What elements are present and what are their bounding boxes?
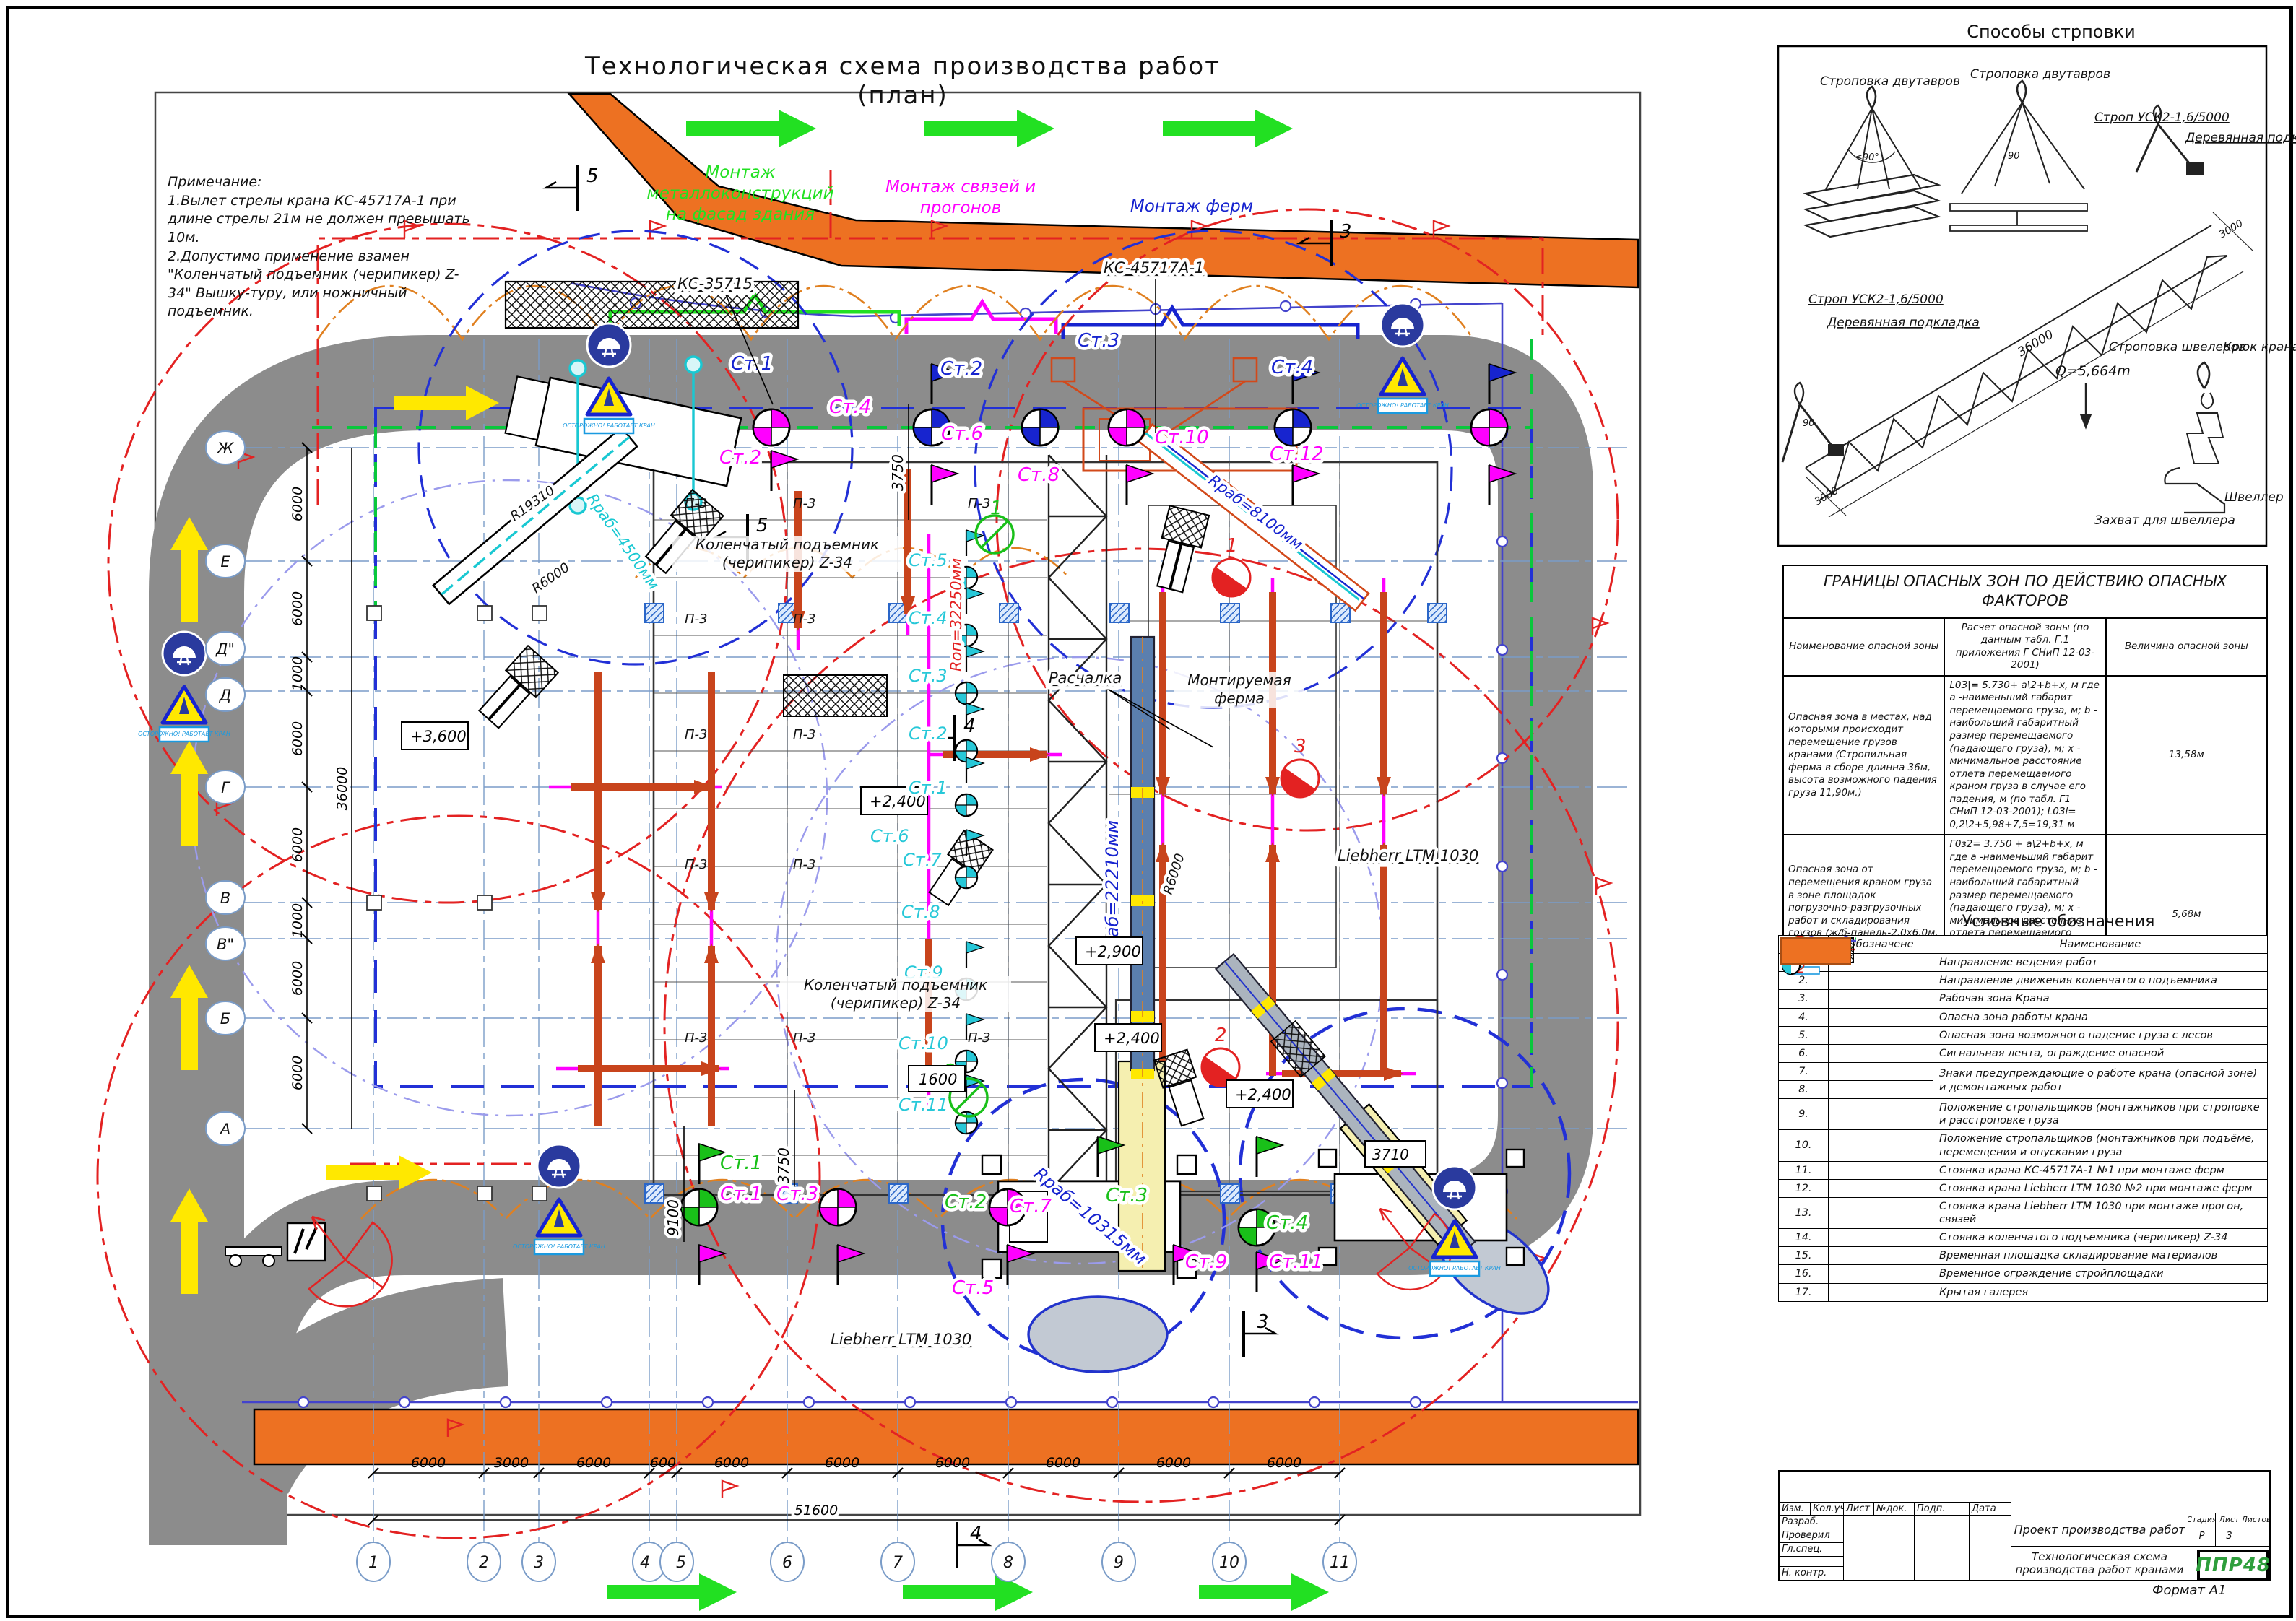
svg-text:КС-35715: КС-35715 bbox=[677, 275, 753, 292]
svg-text:П-3: П-3 bbox=[685, 1030, 707, 1046]
svg-text:ОСТОРОЖНО! РАБОТАЕТ КРАН: ОСТОРОЖНО! РАБОТАЕТ КРАН bbox=[513, 1243, 605, 1250]
cherry-picker-label-2: Коленчатый подъемник (черипикер) Z-34 bbox=[780, 976, 1011, 1012]
svg-text:Rраб=4500мм: Rраб=4500мм bbox=[584, 490, 662, 593]
legend-row: 16. Временное ограждение стройплощадки bbox=[1779, 1265, 2268, 1283]
panel-labels: П-3 П-3 П-3 П-3 П-3 П-3 П-3 П-3 П-3 П-3 … bbox=[685, 496, 990, 1046]
montage-green-label: Монтаж металлоконструкций на фасад здани… bbox=[636, 162, 845, 225]
legend-row: 12. Стоянка крана Liebherr LTM 1030 №2 п… bbox=[1779, 1179, 2268, 1197]
temp-fence-icon bbox=[1829, 1265, 1933, 1283]
svg-text:Ст.2: Ст.2 bbox=[945, 1191, 987, 1213]
legend-row: 15. Временная площадка складирование мат… bbox=[1779, 1247, 2268, 1265]
svg-text:В": В" bbox=[217, 936, 234, 953]
svg-text:Ст.11: Ст.11 bbox=[1269, 1251, 1323, 1273]
svg-text:Ст.10: Ст.10 bbox=[898, 1033, 948, 1053]
legend-row: 14. Стоянка коленчатого подъемника (чери… bbox=[1779, 1229, 2268, 1247]
svg-text:3: 3 bbox=[1340, 221, 1352, 243]
tb-list: Лист bbox=[1843, 1502, 1873, 1515]
svg-text:1: 1 bbox=[1226, 535, 1238, 557]
svg-text:Ст.8: Ст.8 bbox=[901, 902, 940, 922]
svg-text:Расчалка: Расчалка bbox=[1049, 669, 1122, 687]
svg-text:3: 3 bbox=[1294, 736, 1307, 757]
tb-proveril: Проверил bbox=[1780, 1529, 1843, 1542]
drawing-sheet: ОСТОРОЖНО! РАБОТАЕТ КРАН ОСТОРОЖНО! РАБО… bbox=[0, 0, 2296, 1621]
tb-podp: Подп. bbox=[1914, 1502, 1969, 1515]
svg-text:10: 10 bbox=[1219, 1554, 1239, 1572]
danger-zone-icon bbox=[1829, 1008, 1933, 1026]
svg-text:1600: 1600 bbox=[919, 1071, 957, 1088]
svg-text:6: 6 bbox=[782, 1554, 792, 1572]
svg-text:ОСТОРОЖНО! РАБОТАЕТ КРАН: ОСТОРОЖНО! РАБОТАЕТ КРАН bbox=[563, 422, 655, 429]
tb-razrab: Разраб. bbox=[1780, 1515, 1843, 1529]
svg-text:9: 9 bbox=[1114, 1554, 1124, 1572]
svg-text:1000: 1000 bbox=[290, 656, 306, 691]
svg-text:Liebherr LTM 1030: Liebherr LTM 1030 bbox=[831, 1331, 971, 1348]
elevation-labels: +3,600 +2,400 +2,900 +2,400 1600 +2,400 bbox=[402, 722, 1293, 1108]
cherry-picker-label-1: Коленчатый подъемник (черипикер) Z-34 bbox=[672, 536, 903, 572]
svg-text:8: 8 bbox=[1003, 1554, 1013, 1572]
svg-text:Б: Б bbox=[220, 1010, 230, 1027]
svg-text:Ст.6: Ст.6 bbox=[870, 826, 909, 846]
tb-listov: Листов bbox=[2243, 1513, 2269, 1526]
svg-text:П-3: П-3 bbox=[793, 496, 815, 511]
svg-text:П-3: П-3 bbox=[685, 727, 707, 742]
mounted-truss-label: Монтируемая ферма bbox=[1174, 672, 1304, 708]
tb-stadia: Стадия bbox=[2188, 1513, 2215, 1526]
svg-text:Ст.6: Ст.6 bbox=[941, 423, 983, 445]
svg-text:П-3: П-3 bbox=[793, 612, 815, 627]
tb-data: Дата bbox=[1969, 1502, 2011, 1515]
hazard-col1: Наименование опасной зоны bbox=[1783, 618, 1944, 676]
hazard-title: ГРАНИЦЫ ОПАСНЫХ ЗОН ПО ДЕЙСТВИЮ ОПАСНЫХ … bbox=[1783, 565, 2267, 618]
notes-block: Примечание: 1.Вылет стрелы крана КС-4571… bbox=[168, 173, 478, 321]
tb-list-h: Лист bbox=[2215, 1513, 2243, 1526]
sheet-format: Формат А1 bbox=[2152, 1583, 2227, 1598]
svg-text:П-3: П-3 bbox=[793, 727, 815, 742]
title-block: Изм. Кол.уч Лист №док. Подп. Дата Разраб… bbox=[1778, 1470, 2271, 1581]
svg-text:Rраб=8100мм: Rраб=8100мм bbox=[1205, 471, 1307, 553]
hazard-col2: Расчет опасной зоны (по данным табл. Г.1… bbox=[1944, 618, 2105, 676]
svg-text:51600: 51600 bbox=[794, 1503, 838, 1518]
legend-row: 11. Стоянка крана КС-45717А-1 №1 при мон… bbox=[1779, 1161, 2268, 1179]
svg-text:А: А bbox=[219, 1121, 230, 1138]
svg-text:3000: 3000 bbox=[494, 1455, 529, 1471]
ppr48-logo: ППР48 bbox=[2197, 1550, 2269, 1581]
svg-text:Д: Д bbox=[219, 687, 231, 704]
notes-head: Примечание: bbox=[168, 173, 478, 192]
gallery-icon bbox=[1829, 1283, 1933, 1301]
svg-text:Е: Е bbox=[220, 553, 230, 570]
svg-text:Ж: Ж bbox=[216, 440, 235, 457]
svg-text:Ст.11: Ст.11 bbox=[898, 1095, 948, 1115]
svg-text:П-3: П-3 bbox=[685, 612, 707, 627]
svg-text:П-3: П-3 bbox=[793, 857, 815, 872]
station-labels: Ст.1 Ст.2 Ст.3 Ст.4 Ст.2 Ст.4 Ст.6 Ст.8 … bbox=[719, 330, 1324, 1299]
svg-text:3750: 3750 bbox=[775, 1147, 792, 1184]
svg-text:5: 5 bbox=[756, 515, 768, 536]
svg-text:11: 11 bbox=[1330, 1554, 1350, 1572]
legend-row: 6. Сигнальная лента, ограждение опасной bbox=[1779, 1044, 2268, 1062]
tb-project: Проект производства работ bbox=[2011, 1513, 2188, 1546]
svg-text:П-3: П-3 bbox=[685, 496, 707, 511]
svg-text:6000: 6000 bbox=[576, 1455, 611, 1471]
boomlift-direction-icon bbox=[1829, 972, 1933, 990]
slinger-strop-icon: 2 bbox=[1829, 1099, 1933, 1130]
dimension-left-labels: 6000 6000 1000 6000 6000 1000 6000 6000 … bbox=[290, 487, 350, 1090]
svg-text:П-3: П-3 bbox=[793, 1030, 815, 1046]
svg-text:6000: 6000 bbox=[411, 1455, 446, 1471]
svg-text:Д": Д" bbox=[215, 640, 235, 658]
storage-area-icon bbox=[1829, 1247, 1933, 1265]
svg-text:3710: 3710 bbox=[1372, 1146, 1409, 1163]
svg-text:П-3: П-3 bbox=[685, 857, 707, 872]
svg-text:6000: 6000 bbox=[290, 961, 306, 996]
tb-docname: Технологическая схема производства работ… bbox=[2011, 1546, 2188, 1580]
svg-text:+2,400: +2,400 bbox=[1104, 1030, 1160, 1047]
legend-row: 17. Крытая галерея bbox=[1779, 1283, 2268, 1301]
slinger-lift-icon: 2 bbox=[1829, 1130, 1933, 1161]
svg-text:Ст.12: Ст.12 bbox=[1270, 443, 1324, 465]
montage-blue-label: Монтаж ферм bbox=[1112, 196, 1271, 217]
svg-text:Ст.4: Ст.4 bbox=[1266, 1212, 1308, 1234]
svg-text:П-3: П-3 bbox=[968, 1030, 990, 1046]
svg-text:6000: 6000 bbox=[1267, 1455, 1301, 1471]
tb-ndoc: №док. bbox=[1873, 1502, 1914, 1515]
svg-text:Rоп=32250мм: Rоп=32250мм bbox=[948, 558, 965, 672]
svg-text:1: 1 bbox=[368, 1554, 378, 1572]
svg-text:6000: 6000 bbox=[290, 721, 306, 756]
svg-text:3: 3 bbox=[1257, 1311, 1269, 1333]
svg-text:ОСТОРОЖНО! РАБОТАЕТ КРАН: ОСТОРОЖНО! РАБОТАЕТ КРАН bbox=[1408, 1265, 1501, 1272]
grid-bubbles-bottom: 12 34 56 78 910 11 bbox=[357, 1542, 1356, 1581]
work-zone-icon bbox=[1829, 990, 1933, 1008]
svg-text:П-3: П-3 bbox=[968, 496, 990, 511]
svg-text:9100: 9100 bbox=[664, 1199, 682, 1236]
svg-text:Ст.3: Ст.3 bbox=[1078, 330, 1119, 352]
svg-text:ОСТОРОЖНО! РАБОТАЕТ КРАН: ОСТОРОЖНО! РАБОТАЕТ КРАН bbox=[1356, 402, 1449, 409]
svg-text:Ст.5: Ст.5 bbox=[909, 550, 948, 570]
svg-text:Liebherr LTM 1030: Liebherr LTM 1030 bbox=[1338, 847, 1478, 864]
svg-text:+2,900: +2,900 bbox=[1085, 943, 1141, 960]
svg-text:+2,400: +2,400 bbox=[1235, 1086, 1291, 1103]
svg-text:3750: 3750 bbox=[889, 454, 906, 491]
svg-text:7: 7 bbox=[893, 1554, 903, 1572]
svg-text:6000: 6000 bbox=[290, 591, 306, 626]
svg-text:6000: 6000 bbox=[290, 1056, 306, 1090]
svg-text:4: 4 bbox=[963, 716, 976, 737]
svg-text:Ст.7: Ст.7 bbox=[903, 850, 942, 870]
svg-text:6000: 6000 bbox=[1046, 1455, 1080, 1471]
legend-row: 2. Направление движения коленчатого подъ… bbox=[1779, 972, 2268, 990]
legend-row: 13. Стоянка крана Liebherr LTM 1030 при … bbox=[1779, 1197, 2268, 1228]
legend-row: 9. 2 Положение стропальщиков (монтажнико… bbox=[1779, 1099, 2268, 1130]
warning-triangle-icon bbox=[1829, 1081, 1933, 1099]
svg-text:6000: 6000 bbox=[290, 827, 306, 862]
svg-text:Ст.10: Ст.10 bbox=[1155, 427, 1209, 448]
svg-text:6000: 6000 bbox=[714, 1455, 749, 1471]
svg-text:ОСТОРОЖНО! РАБОТАЕТ КРАН: ОСТОРОЖНО! РАБОТАЕТ КРАН bbox=[138, 731, 230, 737]
tb-glspec: Гл.спец. bbox=[1780, 1542, 1843, 1556]
hazard-row: Опасная зона в местах, над которыми прои… bbox=[1783, 676, 2267, 835]
montage-magenta-label: Монтаж связей и прогонов bbox=[859, 177, 1062, 219]
svg-text:4: 4 bbox=[640, 1554, 650, 1572]
svg-text:Ст.2: Ст.2 bbox=[940, 358, 982, 380]
svg-text:2: 2 bbox=[479, 1554, 489, 1572]
tb-list-val: 3 bbox=[2215, 1526, 2243, 1546]
signal-tape-icon bbox=[1829, 1044, 1933, 1062]
legend-row: 5. Опасная зона возможного падение груза… bbox=[1779, 1026, 2268, 1044]
svg-text:2: 2 bbox=[1215, 1025, 1227, 1046]
legend-row: 7. Знаки предупреждающие о работе крана … bbox=[1779, 1062, 2268, 1080]
tb-nkontr: Н. контр. bbox=[1780, 1566, 1843, 1580]
svg-text:36000: 36000 bbox=[334, 767, 350, 810]
svg-text:6000: 6000 bbox=[825, 1455, 859, 1471]
svg-text:Ст.1: Ст.1 bbox=[720, 1152, 762, 1174]
svg-text:Ст.8: Ст.8 bbox=[1018, 464, 1060, 486]
stand-cherry-icon bbox=[1829, 1229, 1933, 1247]
svg-text:В: В bbox=[220, 890, 230, 907]
svg-text:Ст.1: Ст.1 bbox=[720, 1183, 762, 1205]
legend-table: № Обозначене Наименование 1. Направление… bbox=[1778, 935, 2268, 1302]
legend-row: 3. Рабочая зона Крана bbox=[1779, 990, 2268, 1008]
helmet-sign-icon bbox=[1829, 1062, 1933, 1080]
dimension-bottom bbox=[368, 1468, 1345, 1525]
strapping-title: Способы стрповки bbox=[1907, 22, 2196, 42]
svg-text:3: 3 bbox=[534, 1554, 544, 1572]
svg-text:Ст.3: Ст.3 bbox=[776, 1183, 818, 1205]
stand-ks45717-icon bbox=[1829, 1161, 1933, 1179]
svg-text:Ст.3: Ст.3 bbox=[909, 666, 948, 686]
svg-text:Ст.5: Ст.5 bbox=[952, 1277, 994, 1299]
svg-text:Ст.7: Ст.7 bbox=[1010, 1196, 1052, 1217]
svg-text:R6000: R6000 bbox=[529, 560, 573, 596]
legend-title: Условные обозначения bbox=[1914, 913, 2203, 931]
hazard-col3: Величина опасной зоны bbox=[2106, 618, 2267, 676]
svg-text:+3,600: +3,600 bbox=[410, 728, 467, 745]
svg-text:1000: 1000 bbox=[290, 903, 306, 938]
svg-text:Ст.4: Ст.4 bbox=[909, 608, 948, 628]
stand-ltm1030-icon bbox=[1829, 1197, 1933, 1228]
svg-text:4: 4 bbox=[970, 1523, 982, 1544]
note-1: 1.Вылет стрелы крана КС-45717А-1 при дли… bbox=[168, 192, 478, 248]
svg-text:5: 5 bbox=[676, 1554, 686, 1572]
tb-stadia-val: Р bbox=[2188, 1526, 2215, 1546]
legend-row: 4. Опасна зона работы крана bbox=[1779, 1008, 2268, 1026]
svg-text:Ст.9: Ст.9 bbox=[1185, 1251, 1227, 1273]
svg-text:6000: 6000 bbox=[290, 487, 306, 521]
legend-row: 10. 2 Положение стропальщиков (монтажник… bbox=[1779, 1130, 2268, 1161]
svg-text:6000: 6000 bbox=[935, 1455, 970, 1471]
tb-kol: Кол.уч bbox=[1810, 1502, 1843, 1515]
svg-text:Ст.4: Ст.4 bbox=[1271, 357, 1313, 378]
svg-text:Ст.3: Ст.3 bbox=[1106, 1185, 1148, 1207]
page-title: Технологическая схема производства работ… bbox=[556, 52, 1249, 110]
svg-text:6000: 6000 bbox=[1156, 1455, 1191, 1471]
svg-text:КС-45717А-1: КС-45717А-1 bbox=[1104, 259, 1204, 277]
note-2: 2.Допустимо применение взамен "Коленчаты… bbox=[168, 248, 478, 322]
svg-text:Ст.2: Ст.2 bbox=[719, 447, 761, 469]
misc-dims: 3750 3750 9100 3710 bbox=[664, 404, 1426, 1242]
svg-text:Ст.2: Ст.2 bbox=[909, 723, 948, 744]
svg-text:600: 600 bbox=[650, 1455, 676, 1471]
tb-izm: Изм. bbox=[1780, 1502, 1810, 1515]
svg-text:Ст.1: Ст.1 bbox=[909, 778, 948, 798]
svg-text:5: 5 bbox=[586, 165, 599, 187]
scaffold-zone-icon bbox=[1829, 1026, 1933, 1044]
stand-ltm1030-2-icon bbox=[1829, 1179, 1933, 1197]
svg-text:Ст.4: Ст.4 bbox=[829, 396, 871, 418]
